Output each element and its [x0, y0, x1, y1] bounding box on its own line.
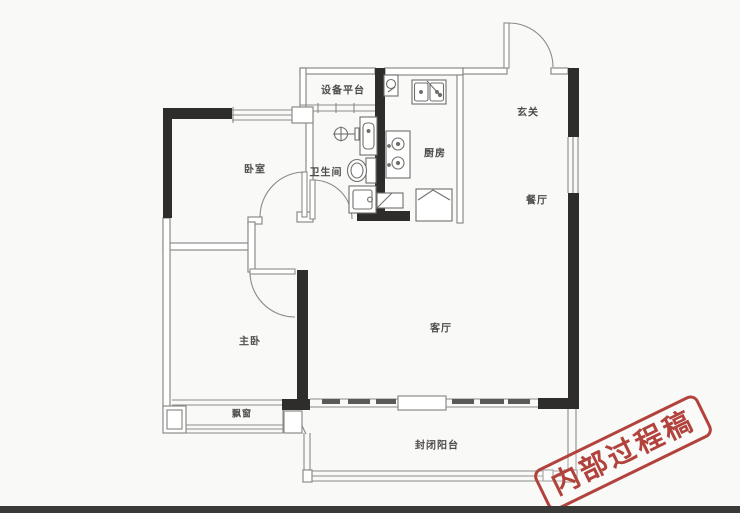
- wall-right-upper-black: [568, 68, 579, 137]
- shower-base-icon: [349, 186, 376, 213]
- junction-bedroom-bathroom: [292, 107, 313, 123]
- wall-master-right-black: [297, 270, 308, 403]
- balcony-bottom-window: [304, 471, 570, 481]
- bedroom-door: [260, 172, 307, 217]
- wall-right-lower-black: [568, 193, 579, 403]
- master-bedroom-door-arc: [250, 272, 295, 317]
- wall-bedroom-top-black: [163, 108, 232, 119]
- bathroom-door: [310, 180, 352, 219]
- room-label-bathroom: 卫生间: [310, 164, 343, 179]
- bedroom-window: [232, 107, 296, 123]
- bay-window-top: [172, 400, 283, 405]
- room-label-dining-room: 餐厅: [526, 192, 548, 207]
- wall-left-upper-black: [163, 108, 172, 218]
- room-label-equipment-platform: 设备平台: [321, 82, 365, 97]
- dining-window: [568, 137, 578, 193]
- room-label-entry-hall: 玄关: [517, 104, 539, 119]
- wall-kitchen-top: [385, 68, 463, 75]
- room-label-kitchen: 厨房: [424, 145, 446, 160]
- bathroom-door-arc: [313, 180, 352, 219]
- room-label-bay-window: 飘窗: [232, 407, 252, 420]
- wall-corner-bottom-right-black: [538, 398, 579, 409]
- pipe-shaft-icon: [384, 75, 398, 96]
- wall-entry-top-right: [551, 68, 568, 74]
- balcony-corner-left: [303, 470, 312, 482]
- gas-stove-icon: [386, 131, 410, 178]
- room-label-bedroom: 卧室: [244, 161, 266, 176]
- photo-bottom-edge: [0, 506, 740, 513]
- wall-corridor-vertical: [248, 222, 255, 272]
- wall-entry-top-left: [463, 68, 507, 74]
- vanity-basin-icon: [360, 117, 377, 155]
- entry-door: [504, 23, 553, 68]
- room-label-enclosed-balcony: 封闭阳台: [415, 437, 459, 452]
- wall-bedroom-bottom: [163, 243, 250, 250]
- kitchen-cabinet-icon: [377, 193, 403, 208]
- bedroom-door-arc: [260, 172, 305, 217]
- bay-window-right-pier: [284, 411, 302, 433]
- sliding-door-panels: [322, 396, 530, 410]
- room-label-master-bedroom: 主卧: [239, 333, 261, 348]
- room-label-living-room: 客厅: [430, 320, 452, 335]
- double-sink-icon: [412, 80, 446, 104]
- shower-head-icon: [333, 127, 359, 142]
- bay-window-left-pier-inner: [167, 410, 182, 429]
- wall-platform-top: [300, 68, 375, 74]
- toilet-icon: [348, 158, 377, 183]
- refrigerator-icon: [416, 189, 452, 221]
- floor-plan-page: 卧室 设备平台 卫生间 厨房 玄关 餐厅 主卧 客厅 飘窗 封闭阳台 内部过程稿: [0, 0, 740, 513]
- master-bedroom-door: [250, 269, 295, 317]
- wall-kitchen-right: [457, 75, 463, 223]
- wall-left-outer-lower: [163, 218, 170, 408]
- entry-door-arc: [509, 23, 553, 67]
